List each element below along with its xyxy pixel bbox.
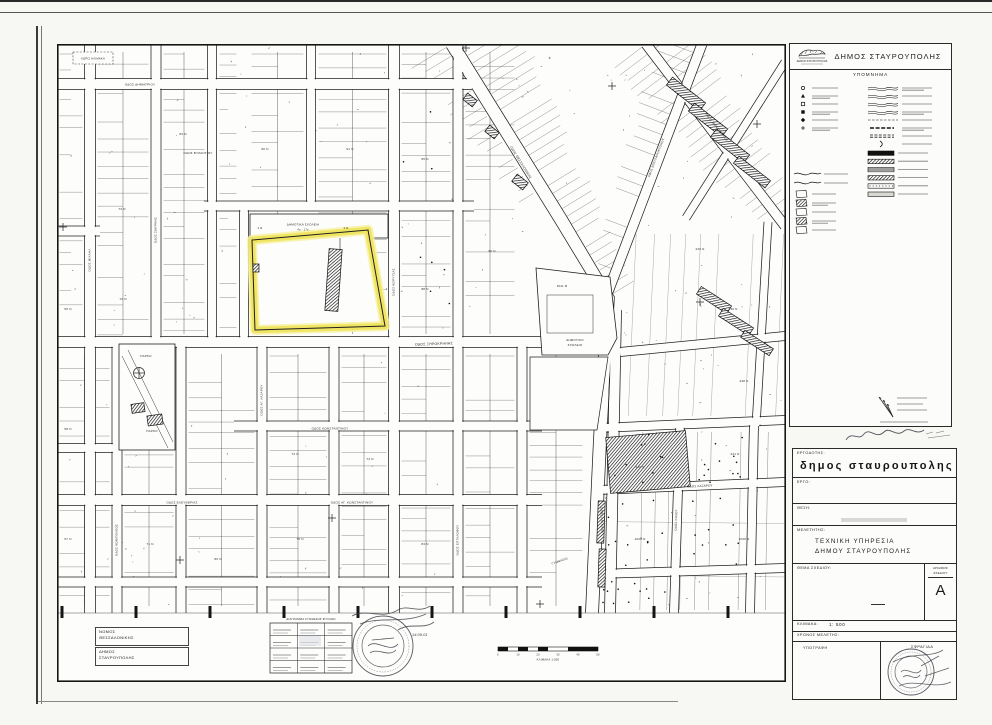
street-name-label: ΟΔΟΣ ΚΩΝ/ΠΟΛΕΩΣ — [115, 524, 119, 556]
legend-symbols — [790, 82, 951, 426]
area-label: 2641 Μ — [557, 284, 568, 288]
title-block-project-row: ΕΡΓΟ: — [793, 478, 956, 504]
park-block — [119, 344, 175, 450]
block-number-label: 90 Ν — [261, 147, 268, 151]
scan-border-bottom — [38, 701, 678, 702]
park-label: ΠΑΡΚΟ — [140, 354, 152, 358]
scale-tick-label: 20 — [536, 653, 540, 657]
cross-hatch-icon — [868, 176, 894, 180]
sheet-diagram-title: ΔΙΑΓΡΑΜΜΑ ΣΥΝΘΕΣΗΣ ΦΥΛΛΩΝ — [286, 617, 335, 621]
title-block-location-row: ΘΕΣΗ: — [793, 504, 956, 526]
square-marker-icon — [801, 102, 804, 105]
block-number-label: 1029 Ν — [635, 537, 646, 541]
municipality-logo-icon: ΔΗΜΟΣ ΣΤΑΥΡΟΥΠΟΛΗΣ — [795, 46, 829, 67]
scale-label: ΚΛΙΜΑΚΑ: — [797, 622, 818, 626]
legend-municipality-title: ΔΗΜΟΣ ΣΤΑΥΡΟΥΠΟΛΗΣ — [832, 52, 944, 61]
neatline-tick — [61, 606, 64, 618]
location-label: ΘΕΣΗ: — [797, 506, 811, 510]
subject-dash — [871, 604, 885, 605]
scale-value: 1: 500 — [829, 622, 845, 627]
light-fill-icon — [868, 192, 894, 196]
number-label-1: ΑΡΙΘΜΟΣ — [925, 566, 956, 570]
legend-panel: ΔΗΜΟΣ ΣΤΑΥΡΟΥΠΟΛΗΣ ΔΗΜΟΣ ΣΤΑΥΡΟΥΠΟΛΗΣ ΥΠ… — [789, 43, 952, 427]
block-number-label: 229 Ν — [695, 247, 704, 251]
triangle-marker-icon — [801, 94, 805, 98]
scale-caption: ΚΛΙΜΑΚΑ 1:500 — [537, 658, 560, 662]
scan-border-top — [0, 0, 992, 2]
building-hatched — [131, 403, 145, 414]
title-block-subject-row: ΘΕΜΑ ΣΧΕΔΙΟΥ: ΑΡΙΘΜΟΣ ΣΧΕΔΙΟΥ Α — [793, 564, 956, 621]
building-hatched-icon — [796, 199, 807, 206]
church-icon — [134, 368, 145, 379]
neatline-tick — [727, 606, 730, 618]
school-strip-label: ΔΗΜΟΤΙΚΑ ΣΧΟΛΕΙΑ — [287, 223, 320, 227]
block-number-label: 75 Ν — [296, 537, 303, 541]
orientation-arrows-icon — [879, 397, 893, 417]
neatline-tick — [209, 606, 212, 618]
neatline-tick — [357, 606, 360, 618]
park-label: ΠΑΡΚΟ — [146, 429, 158, 433]
scan-border-top-2 — [0, 12, 992, 13]
city-plan-map: ΟΔΟΣ ΔΗΜΗΤΡΙΟΥΟΔΟΣ ΒΥΖΑΝΤΙΟΥΟΔΟΣ ΞΗΡΟΚΡΗ… — [57, 44, 786, 682]
slope-line-icon — [868, 103, 898, 106]
square-filled-marker-icon — [801, 110, 804, 113]
neatline-tick — [431, 606, 434, 618]
scale-tick-label: 30 — [556, 653, 560, 657]
street-name-label: ΟΔΟΣ ΕΠΤΑΛΟΦΟΥ — [456, 525, 460, 556]
scan-border-left — [36, 26, 38, 704]
title-block-client-row: ΕΡΓΟΔΟΤΗΣ: δημος σταυρουπολης — [793, 449, 956, 478]
approval-signature — [838, 422, 953, 448]
capacity-mark: 3 Θ — [344, 226, 349, 230]
sports-block-label: ΣΧΟΛΕΙΟ — [568, 343, 583, 347]
block-number-label: 96 Ν — [488, 249, 495, 253]
title-block-date-row: ΧΡΟΝΟΣ ΜΕΛΕΤΗΣ: — [793, 632, 956, 642]
designer-label: ΜΕΛΕΤΗΤΗΣ: — [797, 528, 825, 532]
building-hatched — [147, 414, 163, 426]
scale-tick-label: 40 — [576, 653, 580, 657]
block-number-label: 88 Ν — [421, 287, 428, 291]
street-name-label: ΟΔΟΣ ΚΩΝΣΤΑΝΤΙΝΟΥ — [312, 427, 349, 431]
title-block-signature-row: ΥΠΟΓΡΑΦΗ ΣΦΡΑΓΙΔΑ — [793, 642, 956, 699]
block-number-label: 72 Ν — [119, 297, 126, 301]
building-hatched — [598, 549, 606, 587]
neatline-tick — [283, 606, 286, 618]
neatline-tick — [579, 606, 582, 618]
solid-fill-icon — [868, 151, 894, 155]
street-name-label: ΟΔΟΣ ΑΓ. ΛΑΖΑΡΟΥ — [260, 384, 264, 415]
block-number-label: 84 Ν — [421, 542, 428, 546]
sports-block-label: ΔΗΜΟΤΙΚΟ — [566, 338, 584, 342]
scale-bar — [498, 647, 598, 651]
boundary-line-icon — [794, 173, 821, 175]
block-number-label: 58 Ν — [64, 427, 71, 431]
date-label: ΧΡΟΝΟΣ ΜΕΛΕΤΗΣ: — [797, 633, 839, 637]
drawing-number: Α — [925, 582, 956, 599]
street-name-label: ΟΔΟΣ ΚΑΛΟΥ — [674, 509, 679, 531]
title-block-scale-row: ΚΛΙΜΑΚΑ: 1: 500 — [793, 621, 956, 632]
subject-label: ΘΕΜΑ ΣΧΕΔΙΟΥ: — [797, 566, 831, 570]
prefecture-box: ΝΟΜΟΣ ΘΕΣΣΑΛΟΝΙΚΗΣ — [95, 627, 189, 646]
title-block-designer-row: ΜΕΛΕΤΗΤΗΣ: ΤΕΧΝΙΚΗ ΥΠΗΡΕΣΙΑ ΔΗΜΟΥ ΣΤΑΥΡΟ… — [793, 526, 956, 564]
street-name-label: ΟΔΟΣ ΣΜΥΡΝΗΣ — [154, 217, 158, 243]
building-outline-icon — [796, 190, 807, 197]
title-block: ΕΡΓΟΔΟΤΗΣ: δημος σταυρουπολης ΕΡΓΟ: ΘΕΣΗ… — [792, 448, 957, 700]
block-number-label: 57 Ν — [64, 537, 71, 541]
scale-tick-label: 10 — [516, 653, 520, 657]
no-scale-note: ΧΩΡΙΣ ΚΛΙΜΑΚΑ — [81, 57, 105, 61]
scan-border-left-2 — [41, 26, 42, 704]
bracket-mark-icon — [880, 141, 882, 147]
block-number-label: 73 Ν — [291, 452, 298, 456]
cross-marker-icon — [801, 126, 805, 130]
dot-fill-icon — [868, 184, 894, 188]
capacity-mark: 3 Θ — [258, 226, 263, 230]
client-label: ΕΡΓΟΔΟΤΗΣ: — [797, 451, 825, 455]
building-church-icon — [796, 217, 807, 224]
school-strip-sublabel: 4ο - 17ο — [297, 228, 309, 232]
building-public-icon — [796, 208, 807, 215]
stream-line-icon — [868, 95, 898, 98]
project-label: ΕΡΓΟ: — [797, 480, 810, 484]
drawing-number-cell: ΑΡΙΘΜΟΣ ΣΧΕΔΙΟΥ Α — [924, 564, 956, 621]
legend-title: ΥΠΟΜΝΗΜΑ — [790, 72, 951, 77]
block-number-label: 240 Ν — [635, 465, 644, 469]
block-number-label: 83 Ν — [179, 132, 186, 136]
building-hatched — [606, 431, 691, 494]
location-smudge — [841, 518, 907, 522]
block-number-label: 56 Ν — [64, 307, 71, 311]
circle-marker-icon — [801, 86, 804, 89]
building-hatched — [253, 264, 259, 272]
round-stamp-icon — [881, 642, 956, 698]
designer-line2: ΔΗΜΟΥ ΣΤΑΥΡΟΥΠΟΛΗΣ — [815, 548, 911, 555]
diagonal-hatch-icon — [868, 159, 894, 163]
neatline-tick — [135, 606, 138, 618]
retaining-wall-line-icon — [868, 111, 898, 114]
number-label-2: ΣΧΕΔΙΟΥ — [925, 571, 956, 575]
street-name-label: ΟΔΟΣ ΚΟΡΥΤΣΑΣ — [392, 268, 396, 296]
street-name-label: ΟΔΟΣ ΕΛΕΥΘΕΡΙΑΣ — [166, 501, 197, 505]
boundary-line-icon — [794, 182, 821, 184]
block-number-label: 86 Ν — [214, 557, 221, 561]
client-name: δημος σταυρουπολης — [800, 460, 954, 472]
scanned-map-sheet: { "page": {"paper":"#fdfdfb","ink":"#1c1… — [0, 0, 992, 725]
stamp-date: 14.09.01 — [412, 632, 428, 637]
block-number-label: 91 Ν — [346, 147, 353, 151]
horizontal-hatch-icon — [868, 167, 894, 171]
scale-tick-label: 50 — [596, 653, 600, 657]
curb-line-icon — [868, 87, 898, 90]
block-number-label: 236 Ν — [728, 307, 737, 311]
prefecture-line2: ΘΕΣΣΑΛΟΝΙΚΗΣ — [99, 635, 185, 641]
street-name-label: ΟΔΟΣ ΑΓ. ΚΩΝΣΤΑΝΤΙΝΟΥ — [331, 501, 374, 505]
neatline-tick — [505, 606, 508, 618]
block-number-label: 71 Ν — [146, 542, 153, 546]
designer-line1: ΤΕΧΝΙΚΗ ΥΠΗΡΕΣΙΑ — [815, 538, 895, 545]
double-track-icon — [870, 135, 894, 137]
street-name-label: ΟΔΟΣ ΜΙΧΑΗΛ — [88, 249, 92, 272]
block-number-label: 95 Ν — [421, 157, 428, 161]
building-ruin-icon — [796, 226, 807, 233]
diamond-marker-icon — [801, 118, 805, 122]
number-underline — [928, 577, 953, 578]
block-number-label: 238 Ν — [739, 379, 748, 383]
block-number-label: 241 Ν — [730, 452, 739, 456]
signature-label: ΥΠΟΓΡΑΦΗ — [803, 646, 828, 650]
municipality-line2: ΣΤΑΥΡΟΥΠΟΛΗΣ — [99, 655, 185, 661]
neatline-tick — [653, 606, 656, 618]
street-name-label: ΟΔΟΣ ΔΗΜΗΤΡΙΟΥ — [125, 83, 155, 87]
legend-header: ΔΗΜΟΣ ΣΤΑΥΡΟΥΠΟΛΗΣ ΔΗΜΟΣ ΣΤΑΥΡΟΥΠΟΛΗΣ — [790, 44, 951, 70]
street-name-label: ΟΔΟΣ ΒΥΖΑΝΤΙΟΥ — [184, 151, 213, 155]
logo-caption: ΔΗΜΟΣ ΣΤΑΥΡΟΥΠΟΛΗΣ — [797, 59, 828, 63]
block-number-label: 73 Ν — [118, 207, 125, 211]
block-number-label: 1030 Ν — [739, 537, 750, 541]
municipality-box: ΔΗΜΟΣ ΣΤΑΥΡΟΥΠΟΛΗΣ — [95, 647, 189, 666]
block-number-label: 74 Ν — [366, 457, 373, 461]
